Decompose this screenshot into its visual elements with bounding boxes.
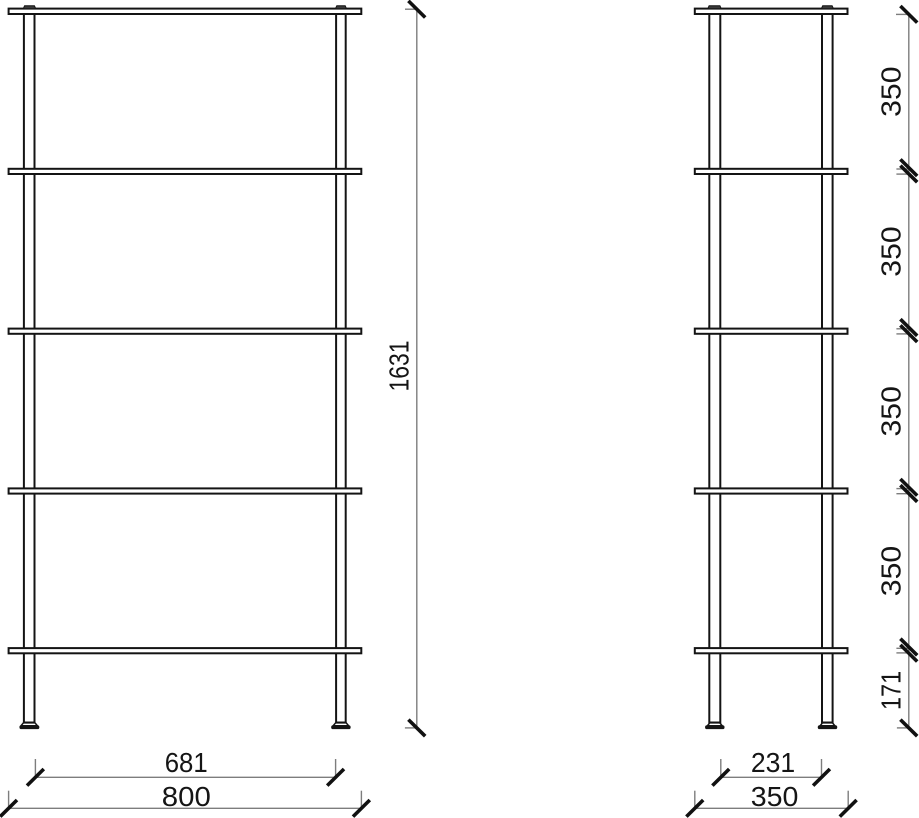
svg-text:350: 350	[876, 386, 907, 436]
svg-text:171: 171	[876, 671, 906, 710]
svg-text:800: 800	[162, 782, 211, 813]
svg-text:350: 350	[876, 66, 907, 116]
svg-text:1631: 1631	[384, 340, 415, 391]
svg-text:350: 350	[876, 546, 907, 596]
svg-text:231: 231	[751, 746, 795, 778]
svg-text:350: 350	[751, 780, 799, 812]
svg-text:350: 350	[876, 226, 907, 276]
svg-text:681: 681	[165, 747, 208, 778]
